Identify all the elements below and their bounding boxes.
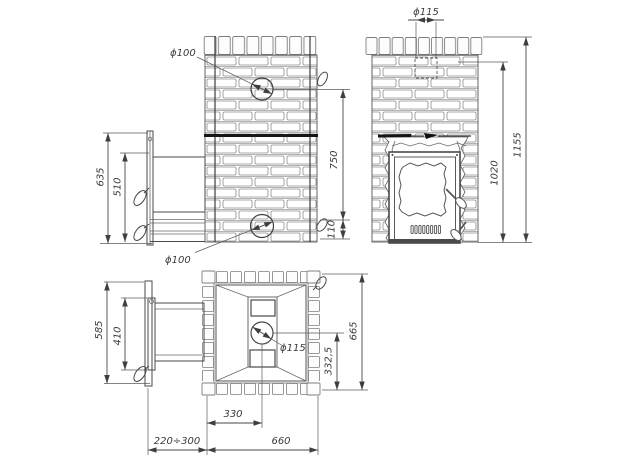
dim-410: 410 [113,326,124,345]
plan-brick-band-top [215,271,307,283]
side-crenellation-course [203,36,317,55]
front-crenellation-course [365,37,483,55]
dim-1155: 1155 [513,132,524,157]
side-fuel-tunnel [131,131,205,245]
door-handle-plan [131,364,148,383]
stove-door [389,152,468,243]
dim-phi100-top: ϕ100 [170,48,196,59]
plan-rear-opening [250,350,275,367]
dim-585: 585 [94,320,105,339]
dim-665: 665 [349,321,360,340]
plan-damper-opening [251,300,275,316]
plan-view: ϕ115 585 410 665 [94,271,368,455]
dim-332-5: 332,5 [324,347,335,376]
dim-220-300: 220÷300 [154,436,201,447]
technical-drawing-canvas: 635 510 750 110 ϕ100 ϕ100 [0,0,624,460]
dim-330: 330 [223,409,242,420]
dim-phi100-bottom: ϕ100 [165,255,191,266]
front-view: ϕ115 1155 1020 [365,7,532,243]
side-view: 635 510 750 110 ϕ100 ϕ100 [96,36,351,266]
damper-handle-top [315,71,329,88]
door-glass-window [399,163,446,216]
door-sill [389,239,460,243]
dim-phi115-chimney: ϕ115 [413,7,439,18]
front-lintel-band [378,136,411,137]
plan-brick-band-bottom [215,383,307,395]
dim-750: 750 [329,150,340,169]
dim-510: 510 [113,177,124,196]
dim-110: 110 [327,220,338,239]
dim-1020: 1020 [490,160,501,185]
stove-drawing: 635 510 750 110 ϕ100 ϕ100 [0,0,624,460]
dim-660: 660 [271,436,290,447]
dim-635: 635 [96,167,107,186]
dim-phi115-plan: ϕ115 [280,343,306,354]
